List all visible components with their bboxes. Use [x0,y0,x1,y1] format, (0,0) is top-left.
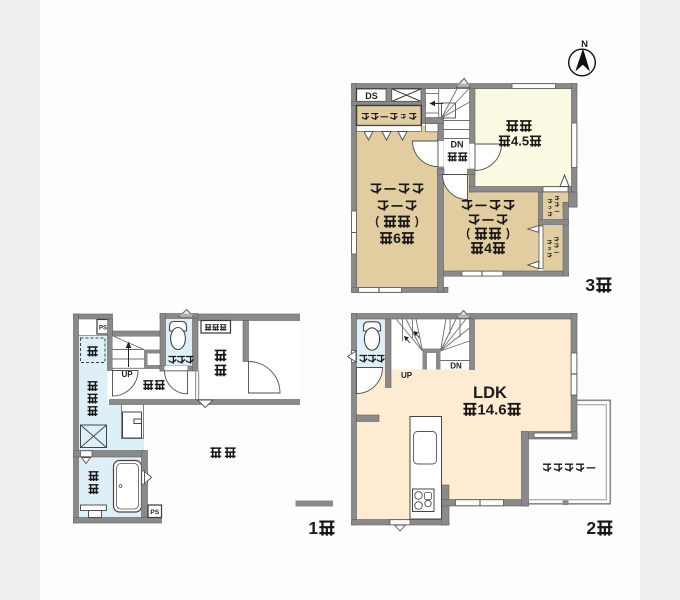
svg-text:14.6: 14.6 [477,402,506,419]
svg-text:3: 3 [585,275,595,295]
svg-text:PS: PS [99,326,107,332]
svg-text:4: 4 [484,240,492,256]
svg-text:UP: UP [121,370,133,379]
svg-text:6: 6 [393,230,401,246]
svg-text:DS: DS [365,91,378,101]
svg-text:4.5: 4.5 [511,134,529,149]
svg-text:DN: DN [451,140,464,150]
svg-text:1: 1 [308,518,318,538]
svg-text:2: 2 [586,518,596,538]
svg-text:UP: UP [401,371,413,380]
svg-text:LDK: LDK [473,384,507,402]
svg-text:PS: PS [150,509,159,516]
svg-text:DN: DN [450,362,462,371]
svg-text:N: N [581,39,588,50]
